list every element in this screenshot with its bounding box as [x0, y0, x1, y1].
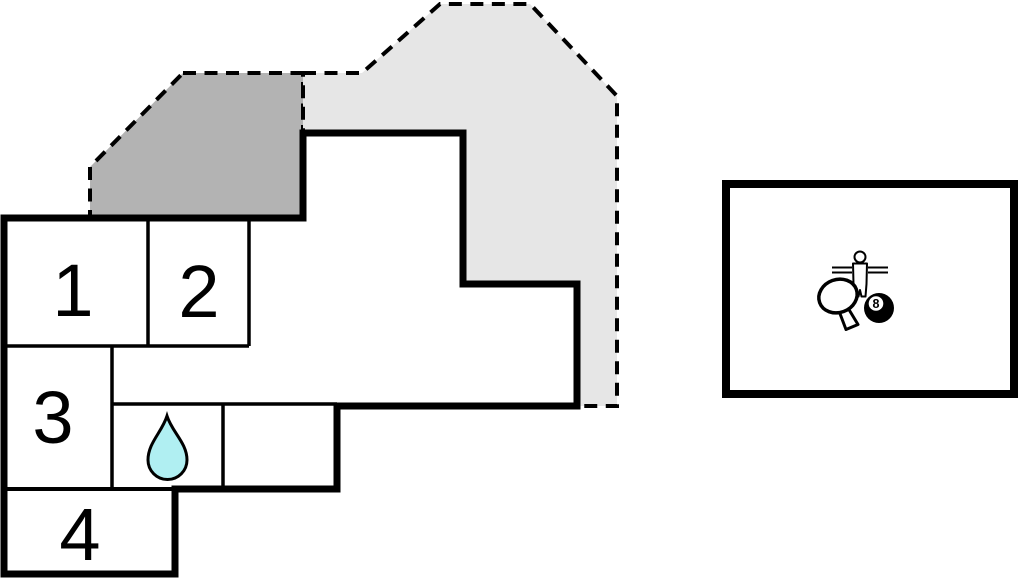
- room-1-label: 1: [52, 249, 93, 332]
- room-4-label: 4: [59, 493, 100, 576]
- room-3-label: 3: [32, 376, 73, 459]
- billiard-8-ball-icon: 8: [864, 293, 894, 323]
- terrace-upper-left-area: [90, 73, 303, 218]
- room-2-label: 2: [178, 250, 219, 333]
- floor-plan-canvas: 1 2 3 4 8: [0, 0, 1024, 585]
- ball-number-label: 8: [873, 297, 880, 311]
- game-room: [726, 184, 1014, 394]
